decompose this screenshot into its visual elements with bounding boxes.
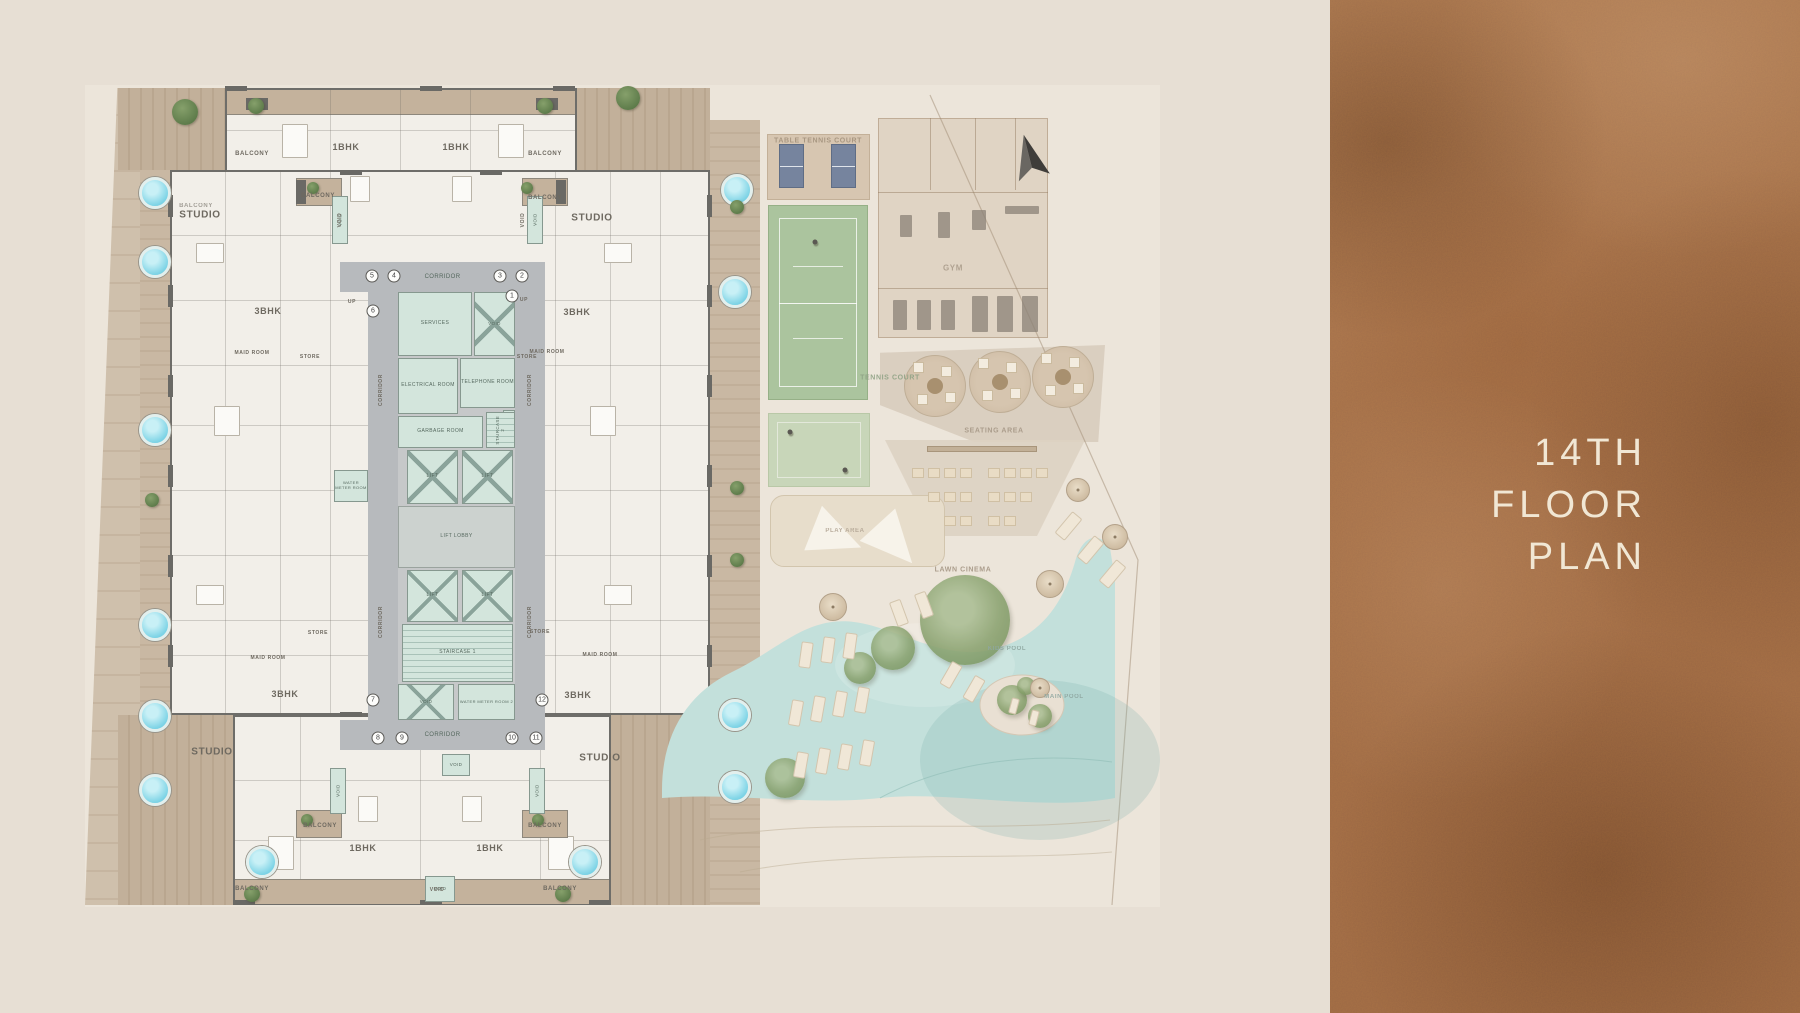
cinema-seat <box>1004 516 1016 526</box>
plan-label-void: VOID <box>520 213 526 228</box>
plan-label-balcony: BALCONY <box>528 823 562 829</box>
cluster-chair <box>1006 362 1017 373</box>
gym-equipment <box>900 215 912 237</box>
hot-tub <box>569 846 601 878</box>
person-figure <box>813 240 818 245</box>
cinema-seat <box>960 492 972 502</box>
plan-label-play-area: PLAY AREA <box>825 528 864 534</box>
plan-label-seating-area: SEATING AREA <box>964 428 1023 435</box>
plan-label-store: STORE <box>308 630 328 636</box>
unit-number-badge: 5 <box>366 270 379 283</box>
title-line-3: PLAN <box>1491 531 1647 583</box>
pool-umbrella <box>1036 570 1064 598</box>
hot-tub <box>139 246 171 278</box>
plan-label-studio: STUDIO <box>191 747 232 758</box>
cluster-chair <box>913 362 924 373</box>
unit-number-badge: 1 <box>506 290 519 303</box>
plan-label-balcony: BALCONY <box>301 193 335 199</box>
cinema-seat <box>960 468 972 478</box>
hot-tub <box>139 774 171 806</box>
cinema-seat <box>928 468 940 478</box>
title-line-1: 14TH <box>1491 427 1647 479</box>
plant <box>248 98 264 114</box>
cluster-chair <box>941 366 952 377</box>
plan-label-up: UP <box>348 299 356 305</box>
plan-label-1bhk: 1BHK <box>350 843 377 853</box>
plan-label-main-pool: MAIN POOL <box>1044 694 1083 700</box>
cinema-seat <box>1004 492 1016 502</box>
plant <box>616 86 640 110</box>
hot-tub <box>139 609 171 641</box>
hot-tub <box>139 177 171 209</box>
unit-number-badge: 3 <box>494 270 507 283</box>
gym-wall-line <box>878 288 1048 289</box>
gym-equipment <box>941 300 955 330</box>
cluster-chair <box>917 394 928 405</box>
plant <box>730 200 744 214</box>
cluster-chair <box>1010 388 1021 399</box>
title-line-2: FLOOR <box>1491 479 1647 531</box>
hot-tub <box>139 700 171 732</box>
cluster-table <box>992 374 1008 390</box>
cinema-seat <box>912 468 924 478</box>
plan-label-gym: GYM <box>943 264 963 273</box>
plan-label-maid-room: MAID ROOM <box>582 652 617 658</box>
floor-plan-canvas: CORRIDORSERVICESVOIDELECTRICAL ROOMTELEP… <box>0 0 1330 1013</box>
unit-number-badge: 12 <box>536 694 549 707</box>
unit-number-badge: 9 <box>396 732 409 745</box>
brand-panel: 14TH FLOOR PLAN <box>1330 0 1800 1013</box>
cinema-seat <box>960 516 972 526</box>
plan-label-balcony: BALCONY <box>303 823 337 829</box>
cluster-chair <box>978 358 989 369</box>
plan-label-3bhk: 3BHK <box>564 307 591 317</box>
plan-label-store: STORE <box>530 629 550 635</box>
plan-label-maid-room: MAID ROOM <box>250 655 285 661</box>
gym-equipment <box>997 296 1013 332</box>
plan-label-void: VOID <box>337 213 343 228</box>
plan-label-void: VOID <box>430 887 445 893</box>
table-tennis-table <box>779 144 804 188</box>
plan-label-corridor: CORRIDOR <box>378 374 384 406</box>
plan-label-balcony: BALCONY <box>528 195 562 201</box>
hot-tub <box>719 771 751 803</box>
unit-number-badge: 7 <box>367 694 380 707</box>
cinema-seat <box>944 516 956 526</box>
pool-umbrella <box>819 593 847 621</box>
plan-label-tennis-court: TENNIS COURT <box>860 375 920 382</box>
cinema-seat <box>988 492 1000 502</box>
plan-label-balcony: BALCONY <box>235 151 269 157</box>
gym-equipment <box>1005 206 1039 214</box>
cinema-seat <box>928 492 940 502</box>
plan-label-up: UP <box>520 297 528 303</box>
plan-label-balcony: BALCONY <box>543 886 577 892</box>
plan-label-studio: STUDIO <box>571 213 612 224</box>
person-figure <box>843 468 848 473</box>
cluster-table <box>927 378 943 394</box>
gym-equipment <box>938 212 950 238</box>
unit-number-badge: 6 <box>367 305 380 318</box>
unit-number-badge: 2 <box>516 270 529 283</box>
seating-cluster <box>1032 346 1094 408</box>
gym-equipment <box>893 300 907 330</box>
plan-label-3bhk: 3BHK <box>565 690 592 700</box>
plant <box>537 98 553 114</box>
gym-equipment <box>972 296 988 332</box>
gym-equipment <box>972 210 986 230</box>
pool-and-boundary-svg <box>0 0 1330 1013</box>
plan-label-balcony: BALCONY <box>235 886 269 892</box>
cinema-seat <box>1036 468 1048 478</box>
plan-label-corridor: CORRIDOR <box>378 606 384 638</box>
plan-label-3bhk: 3BHK <box>255 306 282 316</box>
cluster-chair <box>1041 353 1052 364</box>
unit-number-badge: 10 <box>506 732 519 745</box>
plan-label-corridor: CORRIDOR <box>527 374 533 406</box>
unit-number-badge: 4 <box>388 270 401 283</box>
cluster-chair <box>1045 385 1056 396</box>
plan-label-balcony: BALCONY <box>528 151 562 157</box>
gym-equipment <box>917 300 931 330</box>
plant <box>145 493 159 507</box>
plan-label-kids-pool: KIDS POOL <box>988 646 1026 652</box>
table-tennis-table <box>831 144 856 188</box>
plan-label-3bhk: 3BHK <box>272 689 299 699</box>
cinema-seat <box>1020 492 1032 502</box>
unit-number-badge: 8 <box>372 732 385 745</box>
cinema-seat <box>988 516 1000 526</box>
plan-label-studio: STUDIO <box>179 210 220 221</box>
cinema-seat <box>1004 468 1016 478</box>
plan-label-store: STORE <box>517 354 537 360</box>
gym-equipment <box>1022 296 1038 332</box>
plan-label-balcony: BALCONY <box>179 203 213 209</box>
gym-wall-line <box>975 118 976 190</box>
page-title: 14TH FLOOR PLAN <box>1491 427 1647 583</box>
pool-umbrella <box>1102 524 1128 550</box>
seating-cluster <box>904 355 966 417</box>
plan-label-1bhk: 1BHK <box>333 142 360 152</box>
unit-number-badge: 11 <box>530 732 543 745</box>
plan-label-store: STORE <box>300 354 320 360</box>
cinema-seat <box>1020 468 1032 478</box>
plant <box>730 553 744 567</box>
hot-tub <box>246 846 278 878</box>
plan-label-studio: STUDIO <box>579 753 620 764</box>
cluster-chair <box>1073 383 1084 394</box>
tree <box>871 626 915 670</box>
hot-tub <box>719 699 751 731</box>
plan-label-lawn-cinema: LAWN CINEMA <box>935 567 992 574</box>
plan-label-1bhk: 1BHK <box>443 142 470 152</box>
cinema-seat <box>988 468 1000 478</box>
cluster-table <box>1055 369 1071 385</box>
gym-wall-line <box>930 118 931 190</box>
plan-label-table-tennis-court: TABLE TENNIS COURT <box>774 138 862 145</box>
cinema-seat <box>944 468 956 478</box>
hot-tub <box>139 414 171 446</box>
cinema-seat <box>944 492 956 502</box>
plan-label-maid-room: MAID ROOM <box>234 350 269 356</box>
plant <box>172 99 198 125</box>
sand-contour <box>740 852 1112 872</box>
plant <box>521 182 533 194</box>
cluster-chair <box>945 392 956 403</box>
seating-cluster <box>969 351 1031 413</box>
cluster-chair <box>1069 357 1080 368</box>
pool-umbrella <box>1066 478 1090 502</box>
plant <box>730 481 744 495</box>
plan-label-1bhk: 1BHK <box>477 843 504 853</box>
hot-tub <box>719 276 751 308</box>
person-figure <box>788 430 793 435</box>
cluster-chair <box>982 390 993 401</box>
